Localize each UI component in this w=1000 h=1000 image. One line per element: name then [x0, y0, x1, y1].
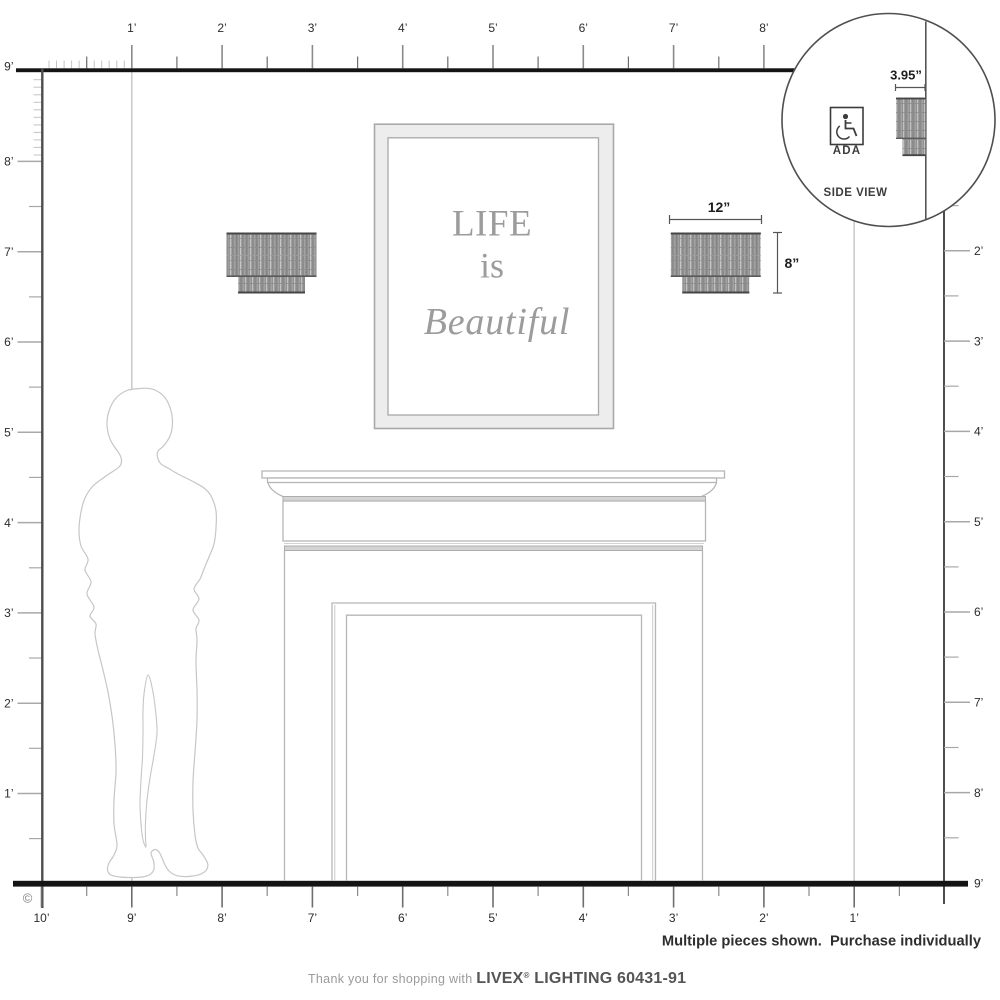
svg-text:4’: 4’ — [398, 21, 407, 35]
svg-text:Beautiful: Beautiful — [424, 301, 571, 343]
svg-text:2’: 2’ — [759, 911, 768, 925]
svg-text:3’: 3’ — [308, 21, 317, 35]
svg-text:12”: 12” — [708, 199, 731, 215]
svg-text:2’: 2’ — [217, 21, 226, 35]
svg-text:2’: 2’ — [974, 244, 983, 258]
svg-text:6’: 6’ — [974, 605, 983, 619]
svg-text:SIDE VIEW: SIDE VIEW — [824, 187, 888, 199]
svg-text:6’: 6’ — [579, 21, 588, 35]
svg-text:8’: 8’ — [974, 786, 983, 800]
svg-text:7’: 7’ — [4, 245, 13, 259]
svg-text:1’: 1’ — [4, 787, 13, 801]
svg-text:5’: 5’ — [4, 426, 13, 440]
svg-text:8’: 8’ — [4, 155, 13, 169]
svg-text:7’: 7’ — [308, 911, 317, 925]
svg-text:9’: 9’ — [4, 60, 13, 74]
svg-text:4’: 4’ — [974, 425, 983, 439]
svg-text:ADA: ADA — [833, 145, 862, 157]
svg-text:8’: 8’ — [217, 911, 226, 925]
svg-text:3’: 3’ — [974, 334, 983, 348]
svg-text:3’: 3’ — [669, 911, 678, 925]
svg-text:5’: 5’ — [974, 515, 983, 529]
svg-text:5’: 5’ — [488, 21, 497, 35]
svg-text:Multiple pieces shown. Purcha: Multiple pieces shown. Purchase individu… — [662, 934, 982, 950]
svg-text:1’: 1’ — [850, 911, 859, 925]
svg-text:8”: 8” — [785, 255, 800, 271]
svg-text:10’: 10’ — [33, 911, 49, 925]
svg-text:3’: 3’ — [4, 606, 13, 620]
svg-text:Thank you for shopping with LI: Thank you for shopping with LIVEX® LIGHT… — [308, 970, 686, 987]
svg-text:6’: 6’ — [398, 911, 407, 925]
svg-text:3.95”: 3.95” — [890, 68, 922, 83]
svg-text:is: is — [480, 246, 504, 286]
svg-text:7’: 7’ — [974, 696, 983, 710]
svg-text:8’: 8’ — [759, 21, 768, 35]
svg-text:9’: 9’ — [974, 876, 983, 890]
svg-text:4’: 4’ — [579, 911, 588, 925]
svg-text:©: © — [23, 891, 33, 906]
svg-text:9’: 9’ — [127, 911, 136, 925]
svg-text:2’: 2’ — [4, 696, 13, 710]
svg-text:7’: 7’ — [669, 21, 678, 35]
svg-text:1’: 1’ — [127, 21, 136, 35]
svg-text:4’: 4’ — [4, 516, 13, 530]
svg-text:6’: 6’ — [4, 335, 13, 349]
svg-text:LIFE: LIFE — [452, 204, 532, 245]
svg-text:5’: 5’ — [488, 911, 497, 925]
